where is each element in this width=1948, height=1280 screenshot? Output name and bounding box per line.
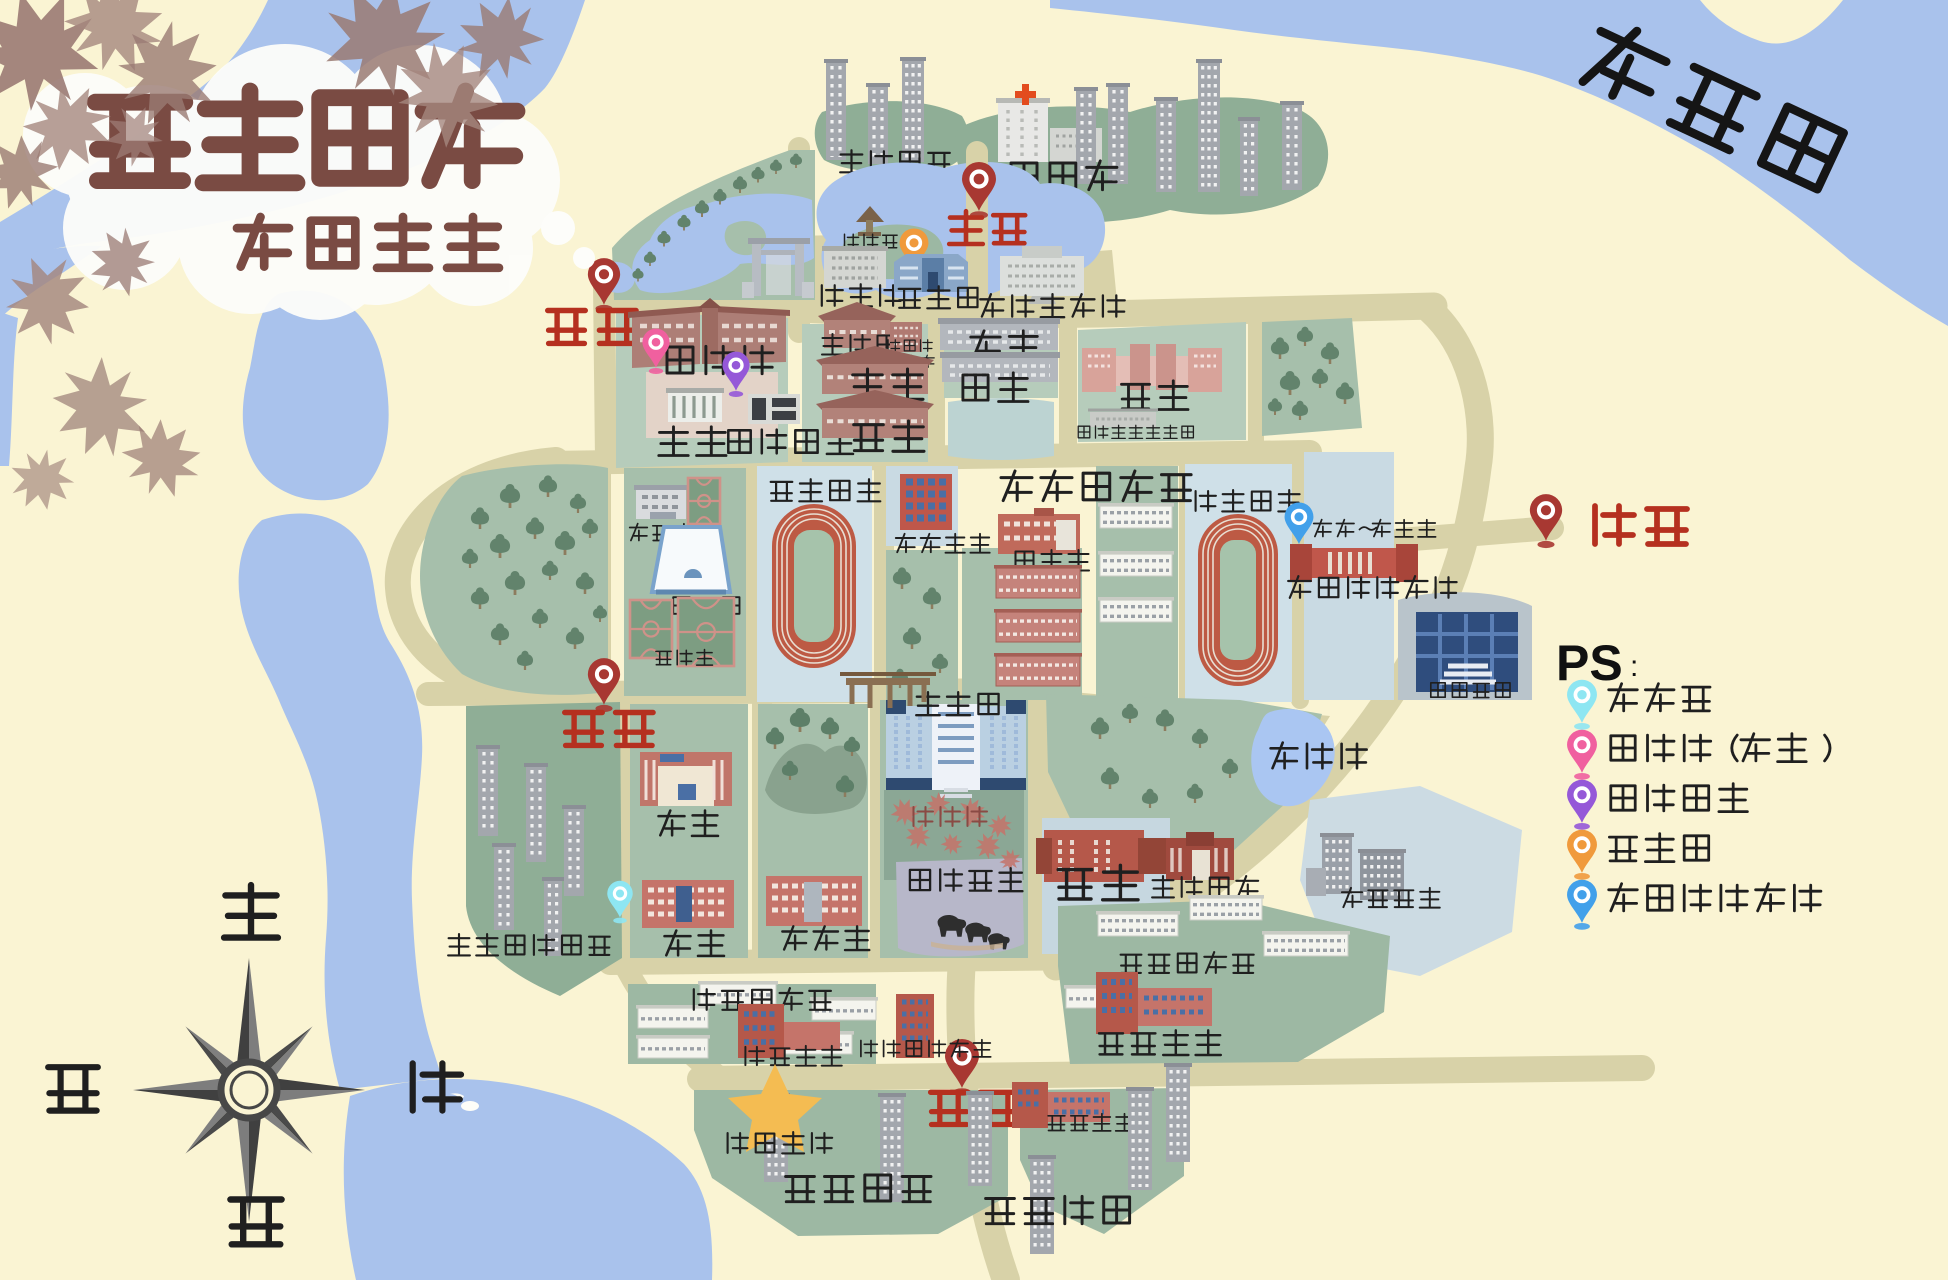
svg-text::: :: [1630, 650, 1638, 683]
